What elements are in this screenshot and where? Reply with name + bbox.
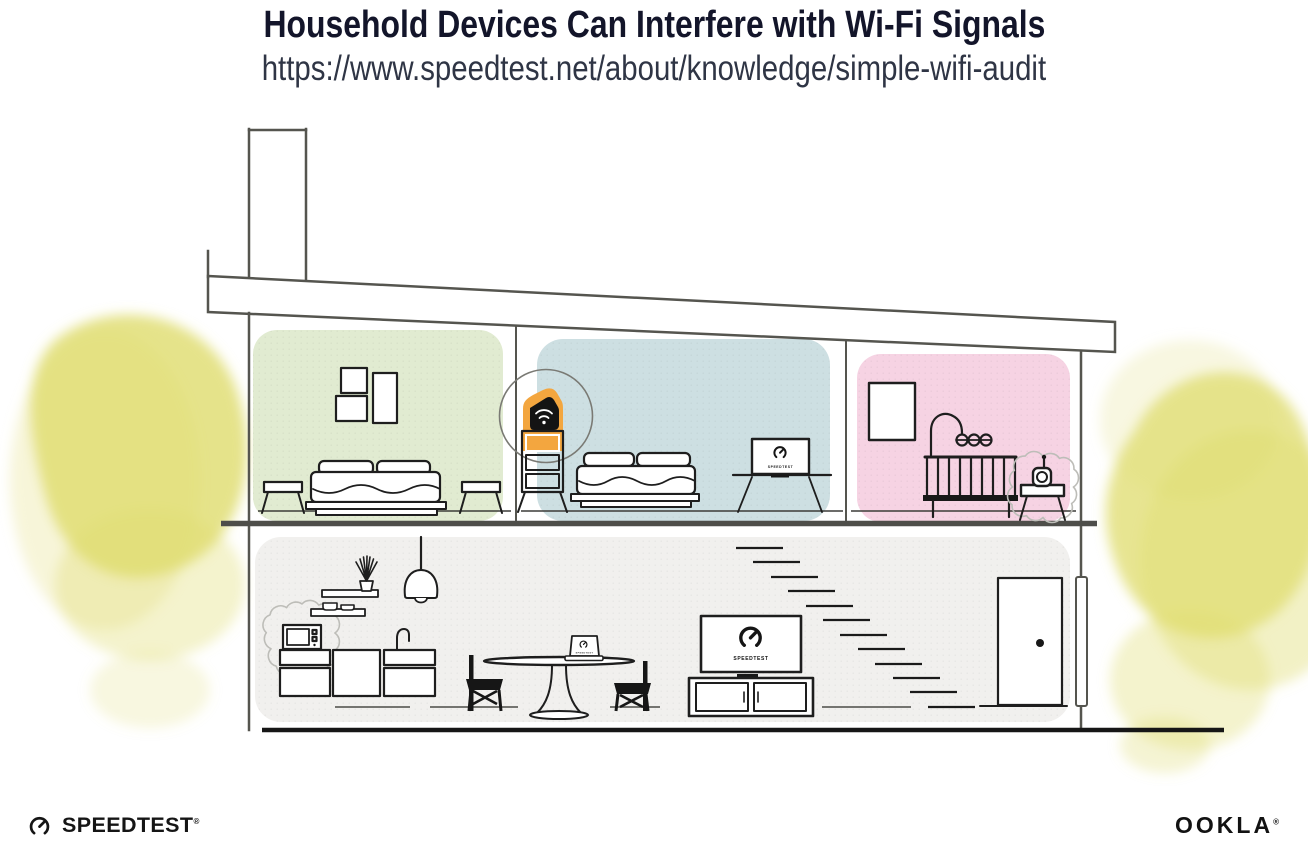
bed [571,453,699,507]
page-title: Household Devices Can Interfere with Wi-… [0,4,1308,48]
media-console [689,678,813,716]
footer: SPEEDTEST® OOKLA® [0,812,1308,839]
monitor-speedtest: SPEEDTEST [752,439,809,478]
speedtest-wordmark: SPEEDTEST® [62,813,200,838]
router-glow-base [523,430,563,451]
picture-frames [336,368,397,423]
living-room: SPEEDTEST [689,616,813,716]
header: Household Devices Can Interfere with Wi-… [0,4,1308,89]
speedtest-logo: SPEEDTEST® [26,812,200,839]
tv-speedtest: SPEEDTEST [701,616,801,678]
doorknob [1036,639,1044,647]
wall-art-frame [869,383,915,440]
baby-monitor [1033,468,1051,486]
house-illustration: SPEEDTEST [0,0,1308,861]
infographic-canvas: Household Devices Can Interfere with Wi-… [0,0,1308,861]
bed [306,461,446,515]
tv-screen-label: SPEEDTEST [733,656,768,662]
ookla-logo: OOKLA® [1175,812,1282,839]
monitor-screen-label: SPEEDTEST [768,465,794,469]
downspout [1076,577,1087,706]
right-bush [1100,340,1308,773]
microwave [283,625,321,649]
kitchen-cabinets [280,650,435,696]
speedtest-gauge-icon [26,812,53,839]
source-url: https://www.speedtest.net/about/knowledg… [0,49,1308,89]
laptop-screen-label: SPEEDTEST [576,653,594,655]
left-bush [10,315,247,728]
